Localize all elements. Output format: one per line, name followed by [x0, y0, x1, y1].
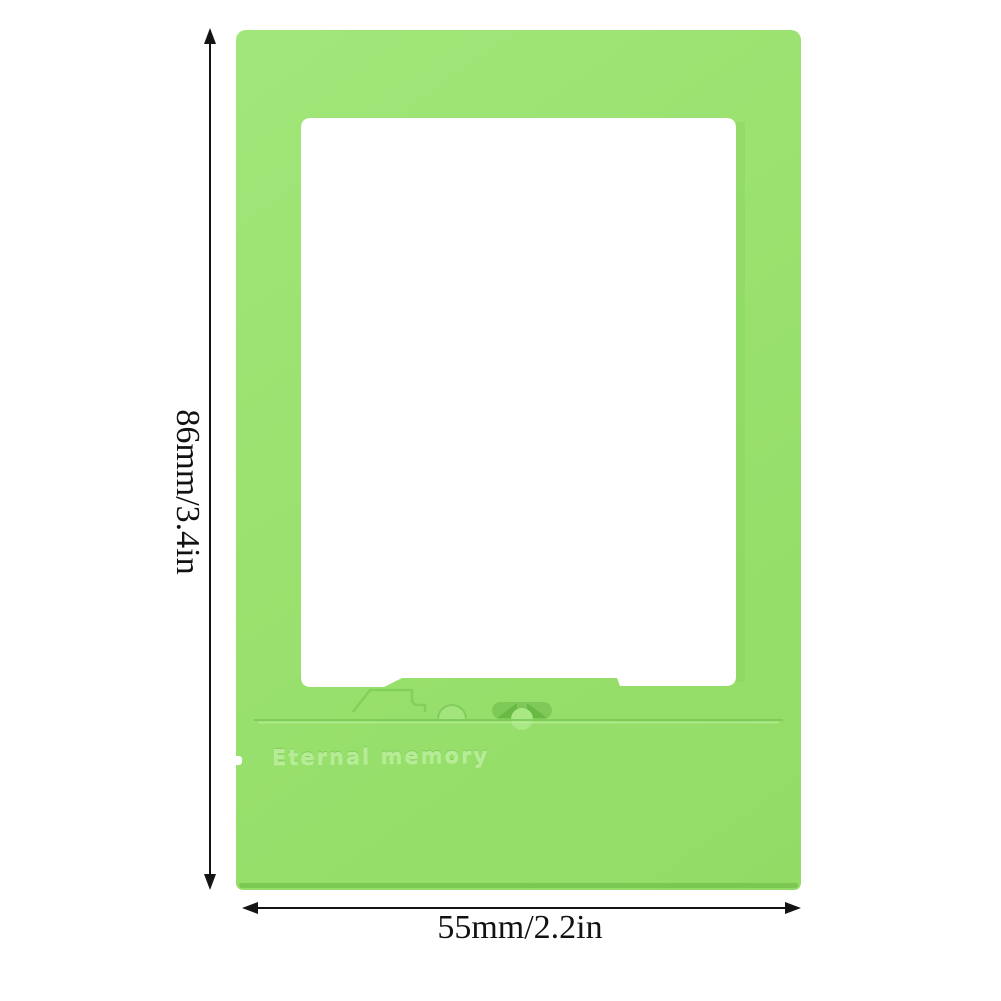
frame-left-notch — [234, 756, 242, 765]
arrow-down-icon — [204, 874, 216, 890]
arrow-up-icon — [204, 28, 216, 44]
frame-window — [301, 118, 736, 687]
arrow-left-icon — [242, 902, 258, 914]
height-dimension-label: 86mm/3.4in — [168, 342, 206, 642]
arrow-right-icon — [785, 902, 801, 914]
width-dimension-label: 55mm/2.2in — [370, 909, 670, 947]
photo-frame: Eternal memory — [236, 30, 801, 890]
frame-engraving: Eternal memory — [272, 743, 532, 774]
height-dimension-line — [209, 44, 211, 874]
product-photo: 86mm/3.4in Eternal memory — [0, 0, 1001, 1001]
